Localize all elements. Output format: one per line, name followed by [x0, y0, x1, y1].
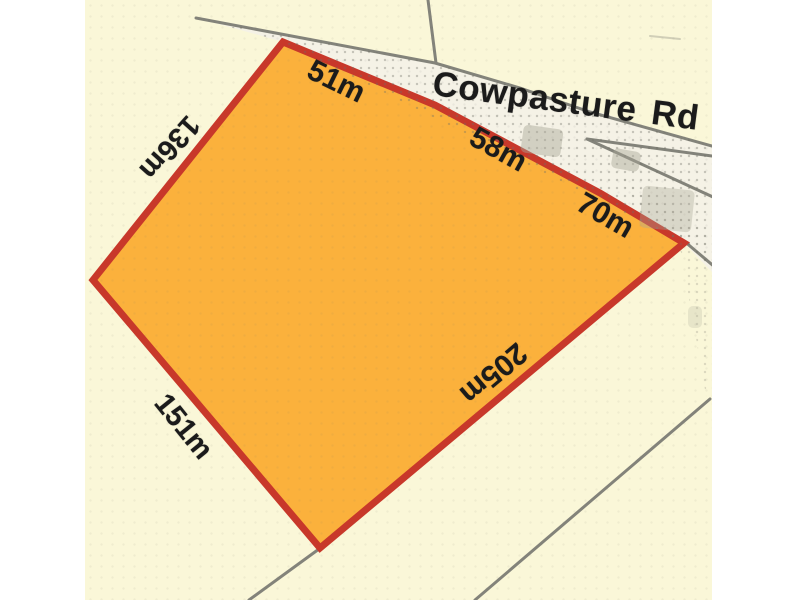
cadastral-map: Cowpasture Rd 51m 58m 70m 136m 151m 205m	[85, 0, 712, 600]
top-vertical-line	[428, 0, 436, 63]
bottom-left-boundary-line	[249, 549, 319, 600]
faint-mark-line	[650, 36, 680, 39]
bottom-right-boundary-line	[475, 399, 710, 600]
